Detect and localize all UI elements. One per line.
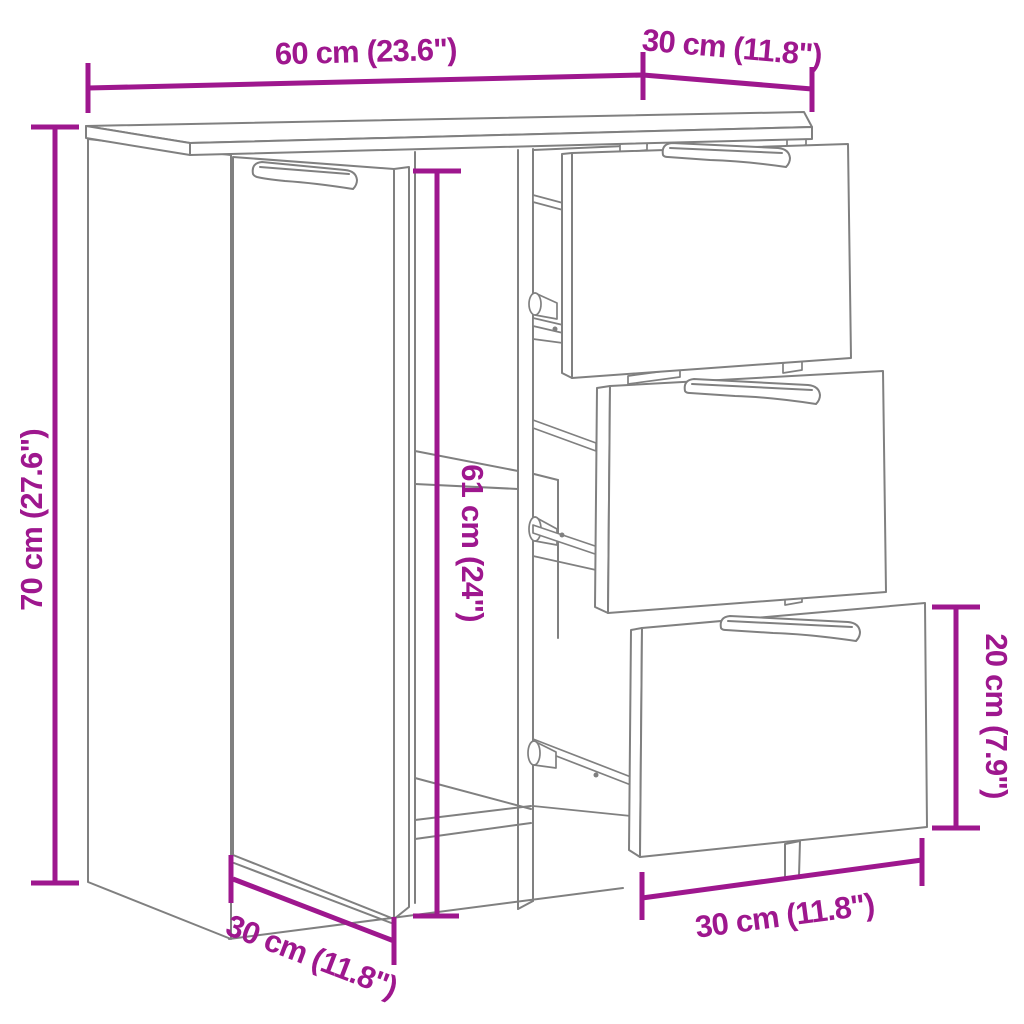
drawer-front-edge <box>562 153 572 378</box>
slide-rail <box>533 318 563 333</box>
drawer-slide-middle <box>529 420 598 570</box>
slide-screw <box>560 533 565 538</box>
dimension-diagram: 60 cm (23.6") 30 cm (11.8") 70 cm (27.6"… <box>0 0 1024 1024</box>
drawer-front-panel <box>640 603 927 857</box>
dimension-label-top-depth: 30 cm (11.8") <box>641 22 823 73</box>
dimension-label-interior-height: 61 cm (24") <box>455 464 490 622</box>
side-panel-left <box>88 139 231 939</box>
dimension-label-width: 60 cm (23.6") <box>274 32 457 72</box>
drawer-top <box>562 143 851 378</box>
dimension-drawer-height-20cm <box>932 607 980 828</box>
slide-rail-line <box>533 339 563 343</box>
drawer-slide-bottom <box>528 739 631 816</box>
dimension-label-drawer-width: 30 cm (11.8") <box>693 886 876 944</box>
dimension-line <box>642 860 922 898</box>
floor-top-edge <box>415 806 531 820</box>
slide-rail-line <box>533 806 631 816</box>
slide-rail <box>533 420 596 451</box>
door-panel <box>233 157 394 919</box>
cabinet-foot <box>785 841 800 879</box>
floor-back-edge <box>415 778 531 809</box>
drawer-bottom <box>629 603 927 879</box>
dimension-label-drawer-height: 20 cm (7.9") <box>979 633 1014 798</box>
dimension-line <box>643 75 812 89</box>
drawer-front-panel <box>572 144 851 378</box>
dimension-label-base-depth: 30 cm (11.8") <box>221 908 402 1005</box>
slide-rail <box>533 195 563 210</box>
cabinet-drawing <box>86 112 927 939</box>
slide-roller-wheel <box>528 741 540 765</box>
dimension-line <box>88 75 643 88</box>
sideboard-diagram-svg: 60 cm (23.6") 30 cm (11.8") 70 cm (27.6"… <box>0 0 1024 1024</box>
shelf-right-stub <box>534 474 558 480</box>
floor-front-edge <box>415 823 531 839</box>
drawer-slide-top <box>529 195 563 343</box>
door-edge <box>394 167 409 919</box>
slide-roller-wheel <box>529 293 541 315</box>
drawer-middle <box>595 371 886 613</box>
slide-screw <box>553 327 558 332</box>
slide-rail-line <box>533 556 596 570</box>
drawer-front-panel <box>608 371 886 613</box>
dimension-label-height: 70 cm (27.6") <box>14 429 49 611</box>
dimension-interior-height-61cm <box>413 171 461 916</box>
slide-screw <box>594 773 599 778</box>
dimension-top-depth-30cm <box>643 67 812 112</box>
